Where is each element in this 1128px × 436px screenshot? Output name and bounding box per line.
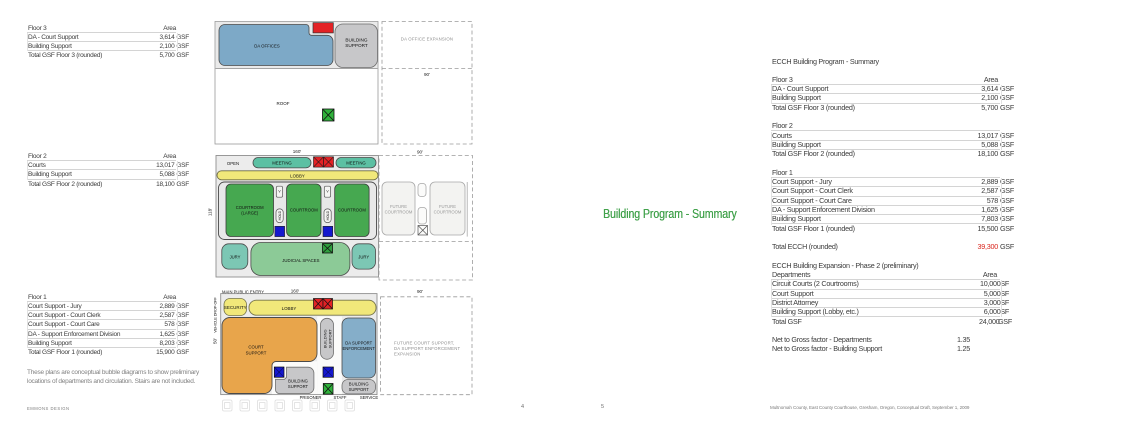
svg-text:SUPPORT: SUPPORT [246, 351, 267, 356]
svg-text:BUILDING: BUILDING [349, 382, 369, 387]
svg-text:DA OFFICE EXPANSION: DA OFFICE EXPANSION [401, 37, 453, 42]
svg-text:JURY: JURY [358, 255, 369, 260]
svg-text:50': 50' [213, 338, 218, 344]
svg-text:COURTROOM: COURTROOM [290, 208, 318, 213]
svg-text:BUILDING: BUILDING [345, 37, 367, 42]
svg-text:JUDICIAL SPACES: JUDICIAL SPACES [282, 258, 319, 263]
svg-text:90': 90' [417, 289, 423, 294]
svg-text:FUTURE: FUTURE [439, 204, 456, 209]
svg-text:SERVICE: SERVICE [360, 395, 379, 400]
svg-text:(LARGE): (LARGE) [241, 211, 259, 216]
svg-text:DA OFFICES: DA OFFICES [254, 44, 280, 49]
svg-text:160': 160' [293, 149, 302, 154]
svg-text:SUPPORT: SUPPORT [288, 384, 309, 389]
svg-text:SUPPORT: SUPPORT [328, 329, 333, 349]
svg-text:LOBBY: LOBBY [290, 173, 305, 178]
svg-text:90': 90' [424, 72, 430, 77]
svg-text:COURTROOM: COURTROOM [338, 208, 366, 213]
svg-text:FUTURE COURT SUPPORT,: FUTURE COURT SUPPORT, [394, 341, 455, 346]
svg-text:SUPPORT: SUPPORT [349, 387, 370, 392]
svg-text:LOBBY: LOBBY [282, 306, 297, 311]
svg-text:COURTROOM: COURTROOM [236, 205, 264, 210]
svg-text:COURT: COURT [248, 345, 264, 350]
svg-text:JURY: JURY [230, 255, 241, 260]
svg-text:MEETING: MEETING [272, 161, 292, 166]
svg-text:SECURITY: SECURITY [224, 305, 247, 310]
svg-text:118': 118' [208, 208, 213, 216]
svg-text:COURTROOM: COURTROOM [434, 210, 462, 215]
svg-text:VEHICLE DROP-OFF: VEHICLE DROP-OFF [214, 296, 218, 332]
svg-text:HOLD: HOLD [278, 210, 282, 220]
svg-text:OPEN: OPEN [227, 161, 239, 166]
svg-text:COURTROOM: COURTROOM [385, 210, 413, 215]
svg-text:DA SUPPORT ENFORCEMENT: DA SUPPORT ENFORCEMENT [394, 346, 460, 351]
svg-text:EXPANSION: EXPANSION [394, 352, 421, 357]
svg-text:160': 160' [291, 289, 300, 294]
svg-text:HOLD: HOLD [326, 210, 330, 220]
svg-text:SUPPORT: SUPPORT [345, 43, 368, 48]
svg-text:PRISONER: PRISONER [300, 395, 322, 400]
svg-text:STAFF: STAFF [334, 395, 347, 400]
svg-text:90': 90' [417, 150, 423, 155]
svg-text:ENFORCEMENT: ENFORCEMENT [343, 346, 376, 351]
svg-text:FUTURE: FUTURE [390, 204, 407, 209]
svg-text:MEETING: MEETING [346, 161, 366, 166]
svg-text:ROOF: ROOF [277, 101, 290, 106]
svg-text:BUILDING: BUILDING [288, 379, 308, 384]
svg-text:DA SUPPORT: DA SUPPORT [345, 341, 372, 346]
